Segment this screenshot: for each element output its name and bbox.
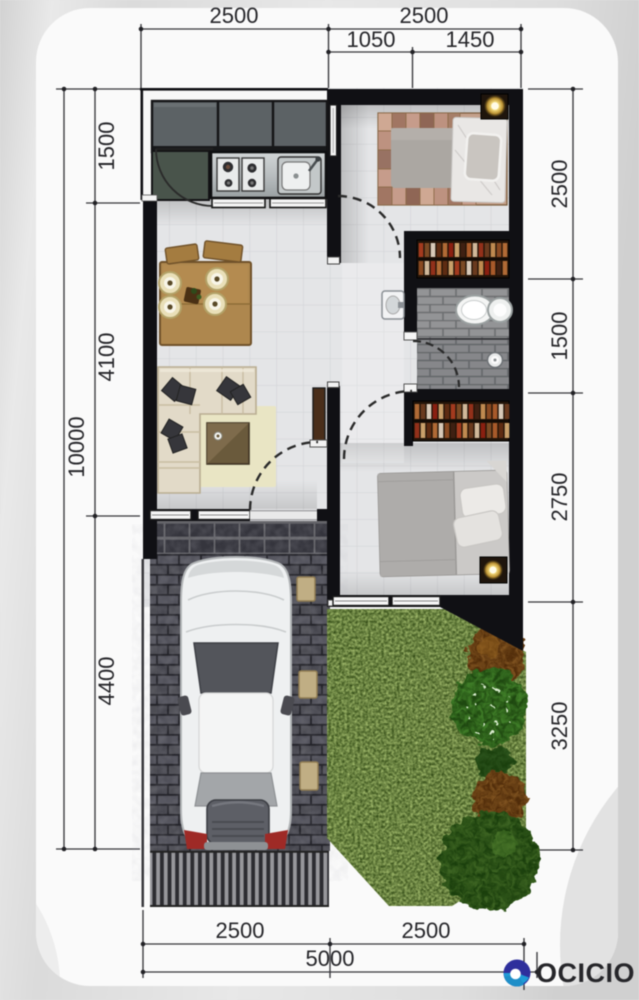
- svg-text:1500: 1500: [94, 122, 119, 171]
- svg-text:2500: 2500: [400, 3, 449, 28]
- svg-text:2500: 2500: [402, 918, 451, 943]
- svg-text:3250: 3250: [547, 702, 572, 751]
- svg-text:4100: 4100: [94, 333, 119, 382]
- svg-text:1450: 1450: [446, 27, 495, 52]
- svg-text:2500: 2500: [210, 3, 259, 28]
- svg-text:5000: 5000: [306, 946, 355, 971]
- svg-text:2500: 2500: [547, 160, 572, 209]
- svg-text:1050: 1050: [347, 27, 396, 52]
- svg-text:4400: 4400: [94, 657, 119, 706]
- svg-text:OCICIO: OCICIO: [536, 958, 635, 988]
- svg-text:2750: 2750: [547, 473, 572, 522]
- svg-text:2500: 2500: [216, 918, 265, 943]
- svg-text:1500: 1500: [547, 312, 572, 361]
- svg-text:10000: 10000: [64, 416, 89, 477]
